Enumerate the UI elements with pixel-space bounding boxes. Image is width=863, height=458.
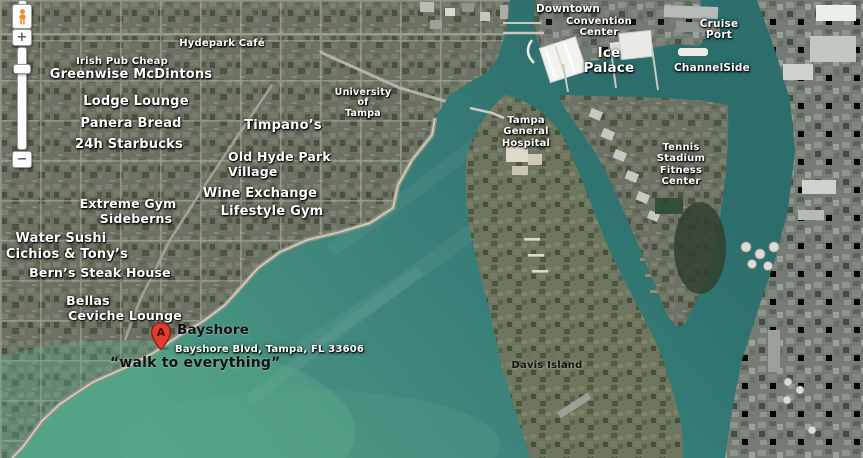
label-university-of-tampa: University of Tampa xyxy=(335,88,392,119)
label-hydepark-cafe: Hydepark Café xyxy=(179,39,265,50)
label-cichios-and-tonys: Cichios & Tony’s xyxy=(6,248,128,262)
map-zoom-control: + − xyxy=(11,0,35,172)
map-viewport[interactable]: Downtown Convention Center Cruise Port I… xyxy=(0,0,863,458)
label-timpanos: Timpano’s xyxy=(244,119,322,133)
label-lifestyle-gym: Lifestyle Gym xyxy=(221,205,324,219)
label-convention-center: Convention Center xyxy=(566,17,632,38)
marker-title: Bayshore xyxy=(177,323,249,337)
label-extreme-gym: Extreme Gym xyxy=(80,197,177,210)
zoom-slider-handle[interactable] xyxy=(13,64,31,74)
pegman-street-view-icon xyxy=(16,8,29,26)
label-old-hyde-park-village: Old Hyde Park Village xyxy=(228,150,331,180)
pegman-button[interactable] xyxy=(12,4,32,29)
label-24h-starbucks: 24h Starbucks xyxy=(75,138,183,152)
label-lodge-lounge: Lodge Lounge xyxy=(83,95,188,109)
label-bellas: Bellas xyxy=(66,294,110,307)
zoom-out-button[interactable]: − xyxy=(12,151,32,168)
label-sideberns: Sideberns xyxy=(100,212,172,225)
label-ice-palace: Ice Palace xyxy=(584,46,635,76)
label-downtown: Downtown xyxy=(536,4,600,15)
zoom-in-button[interactable]: + xyxy=(12,29,32,46)
label-channelside: ChannelSide xyxy=(674,63,750,74)
label-tennis-stadium-fitness-center: Tennis Stadium Fitness Center xyxy=(657,142,705,188)
zoom-slider-track[interactable] xyxy=(17,47,27,150)
marker-letter: A xyxy=(157,326,166,339)
label-davis-island: Davis Island xyxy=(512,361,583,372)
label-cruise-port: Cruise Port xyxy=(700,19,739,41)
map-marker-a[interactable]: A xyxy=(150,322,172,350)
label-wine-exchange: Wine Exchange xyxy=(203,187,317,201)
label-berns-steak-house: Bern’s Steak House xyxy=(29,266,171,279)
label-panera-bread: Panera Bread xyxy=(80,117,181,131)
label-water-sushi: Water Sushi xyxy=(16,232,107,246)
marker-tagline: “walk to everything” xyxy=(110,356,281,371)
label-ceviche-lounge: Ceviche Lounge xyxy=(68,309,182,322)
label-tampa-general-hospital: Tampa General Hospital xyxy=(502,115,550,149)
label-greenwise-mcdintons: Greenwise McDintons xyxy=(50,68,213,82)
